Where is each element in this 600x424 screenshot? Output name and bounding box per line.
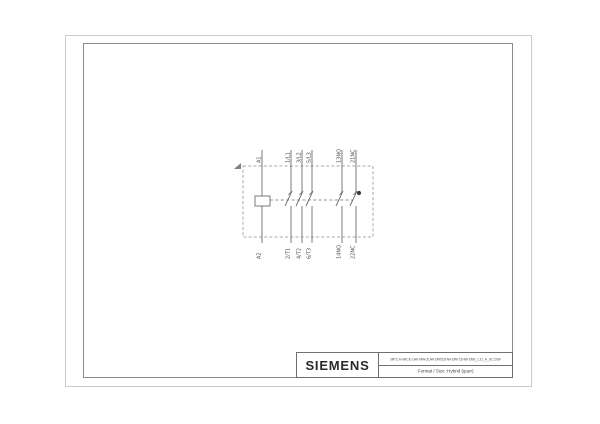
contactor-circuit-diagram: A1A21/L12/T13/L24/T25/L36/T313NO14NO21NC… <box>225 138 400 270</box>
document-code-row: 3RT2.A-6RCE-1AK-MW-ZUW-ZRK5ZHW-ZRK7ZHW-Z… <box>379 353 512 366</box>
terminal-label-bottom: 2/T1 <box>286 248 292 259</box>
terminal-label-top: 21NC <box>351 149 357 163</box>
nc-contact-symbol <box>350 191 357 206</box>
no-contact-symbol <box>285 191 292 206</box>
no-contact-symbol <box>306 191 313 206</box>
terminal-label-top: A1 <box>257 156 263 163</box>
format-size-row: Format / Size :Hybrid (quer) <box>379 366 512 377</box>
terminal-label-bottom: 6/T3 <box>307 248 313 259</box>
terminal-label-bottom: 4/T2 <box>297 248 303 259</box>
format-size-text: Format / Size :Hybrid (quer) <box>418 369 474 374</box>
terminal-label-top: 5/L3 <box>307 152 313 163</box>
terminal-label-bottom: A2 <box>257 252 263 259</box>
terminal-label-bottom: 22NC <box>351 245 357 259</box>
nc-contact-dot <box>357 191 361 195</box>
terminal-path-13NO: 13NO14NO <box>336 149 343 259</box>
terminal-label-top: 3/L2 <box>297 152 303 163</box>
terminal-label-bottom: 14NO <box>337 245 343 259</box>
terminal-label-top: 13NO <box>337 149 343 163</box>
title-block: SIEMENS 3RT2.A-6RCE-1AK-MW-ZUW-ZRK5ZHW-Z… <box>296 352 513 378</box>
terminal-label-top: 1/L1 <box>286 152 292 163</box>
terminal-path-21NC: 21NC22NC <box>350 149 361 259</box>
coil-symbol <box>255 196 270 206</box>
siemens-logo: SIEMENS <box>297 353 379 377</box>
no-contact-symbol <box>296 191 303 206</box>
no-contact-symbol <box>336 191 343 206</box>
terminal-path-A1: A1A2 <box>255 150 270 259</box>
title-block-info: 3RT2.A-6RCE-1AK-MW-ZUW-ZRK5ZHW-ZRK7ZHW-Z… <box>379 353 512 377</box>
document-code-text: 3RT2.A-6RCE-1AK-MW-ZUW-ZRK5ZHW-ZRK7ZHW-Z… <box>390 357 501 361</box>
revision-marker-icon <box>234 163 241 169</box>
